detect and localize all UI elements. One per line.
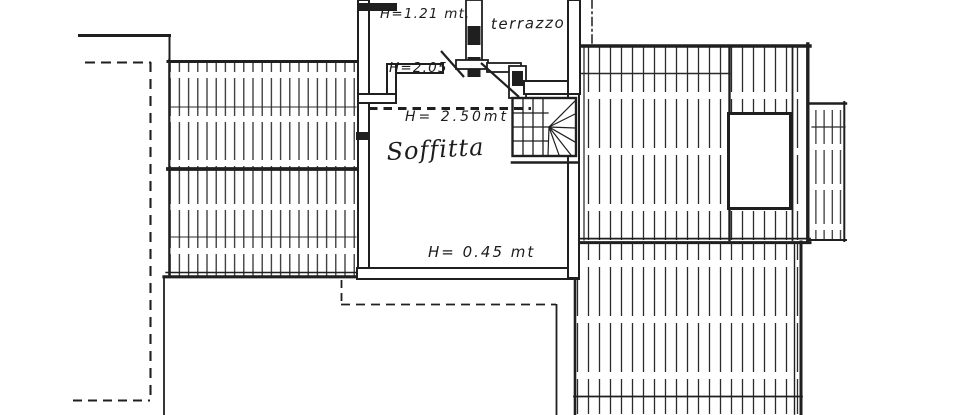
wall-left-junction-tick xyxy=(356,132,370,140)
right-roof-extension-strip xyxy=(809,102,846,241)
right-roof-lower-area xyxy=(574,242,802,414)
left-roof-area xyxy=(164,60,357,277)
bottom-projection-lines xyxy=(341,280,557,415)
wall-room-terrace-block-upper xyxy=(468,26,481,45)
extension-strip-hatch xyxy=(812,103,845,240)
terrace-label: terrazzo xyxy=(491,14,566,33)
floor-plan-drawing: H=1.21 mt. H=2.05 terrazzo H= 2.50mt Sof… xyxy=(0,0,960,415)
left-projection-outline xyxy=(73,34,171,415)
attic-name-label: Soffitta xyxy=(386,133,485,166)
right-roof-upper-area xyxy=(573,0,810,243)
upper-room-height-label: H=1.21 mt. xyxy=(380,6,471,22)
wall-stair-lobby-block xyxy=(512,71,523,86)
wall-attic-north-west xyxy=(358,94,396,103)
skylight-opening xyxy=(729,114,791,209)
eaves-height-label: H= 0.45 mt xyxy=(428,243,535,261)
wall-bottom xyxy=(357,268,579,279)
passage-height-label: H=2.05 xyxy=(389,60,448,76)
floor-plan-scan: H=1.21 mt. H=2.05 terrazzo H= 2.50mt Sof… xyxy=(0,0,960,415)
right-roof-lower-hatch xyxy=(574,243,802,414)
wall-terrace-east xyxy=(568,0,580,94)
attic-height-label: H= 2.50mt xyxy=(405,109,509,125)
